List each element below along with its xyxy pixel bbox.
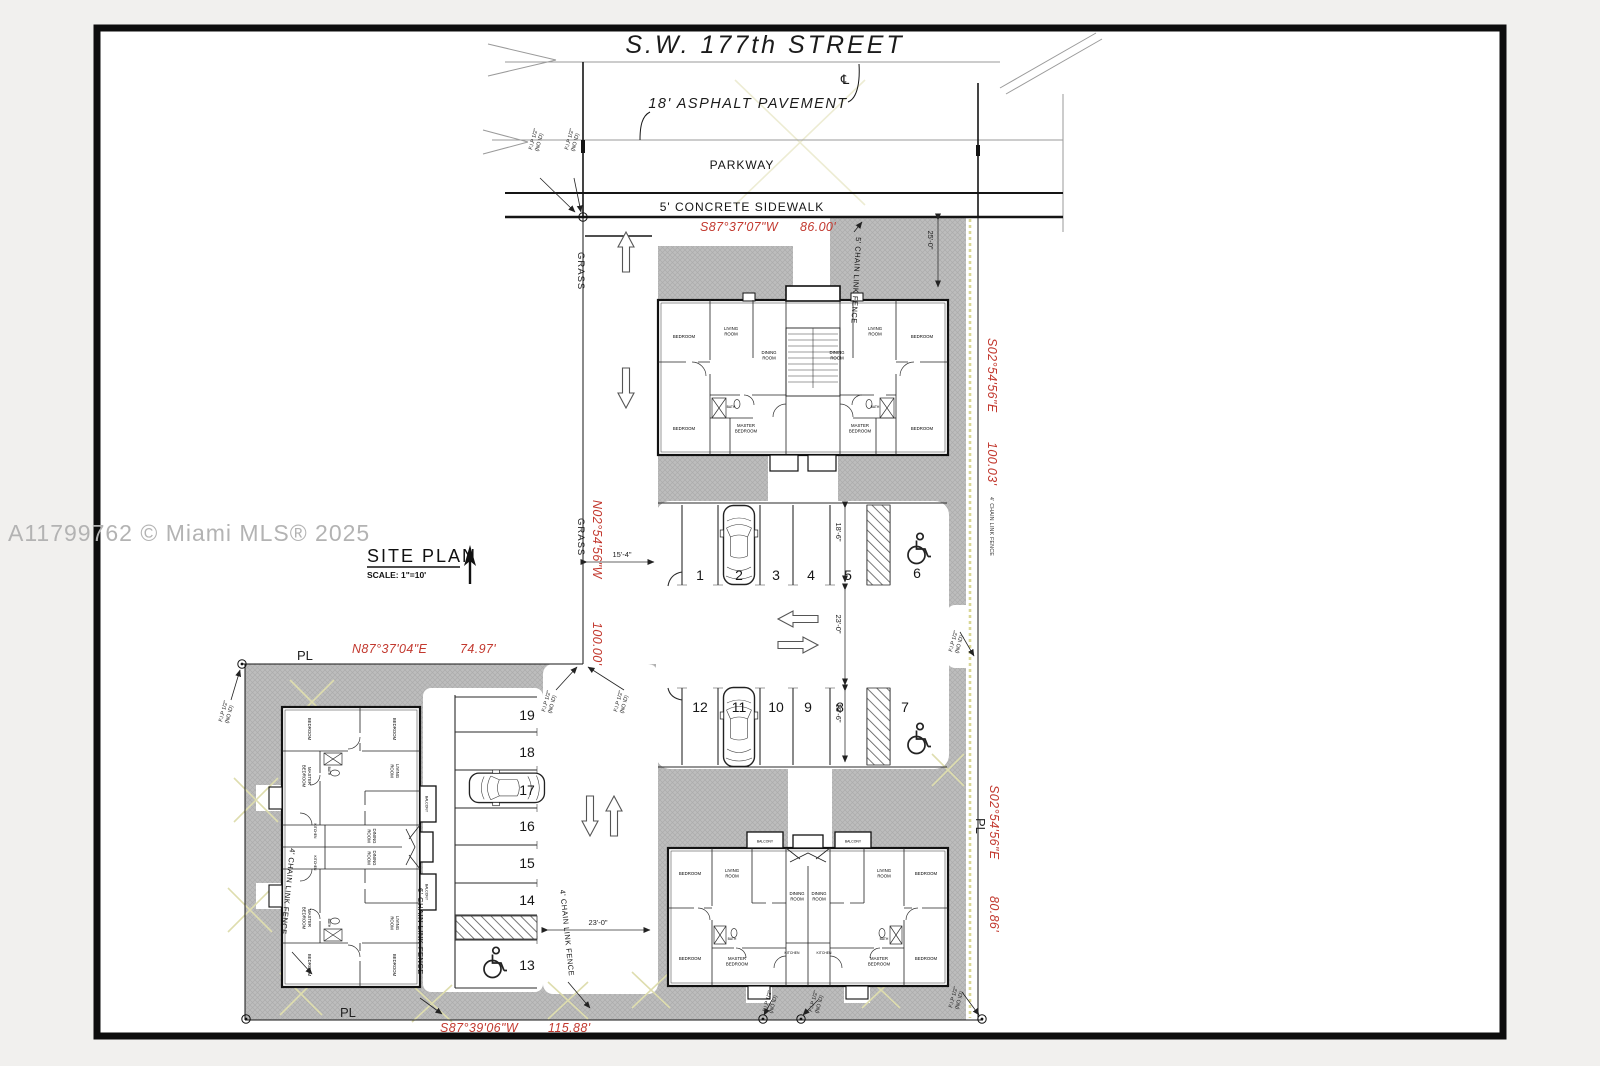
bearing-east-lower-length: 80.86' [987, 896, 1001, 932]
parking-stall-number: 6 [913, 565, 921, 581]
dim-lower-aisle: 23'-0" [588, 918, 607, 927]
bearing-west-length: 100.00' [590, 622, 604, 666]
drawing-scale: SCALE: 1"=10' [367, 570, 426, 580]
parking-stall-number: 19 [519, 707, 535, 723]
dim-setback: 25'-0" [926, 230, 935, 249]
pl-label: PL [973, 818, 988, 834]
bearing-east-upper-length: 100.03' [985, 442, 999, 486]
room-label: BATH [871, 405, 880, 409]
room-label: BEDROOM [673, 334, 696, 339]
fence-label-6ft: 6' CHAIN LINK FENCE [416, 888, 425, 975]
parking-stall-number: 15 [519, 855, 535, 871]
room-label: BEDROOM [673, 426, 696, 431]
parking-stall-number: 17 [519, 782, 535, 798]
parking-stall-number: 13 [519, 957, 535, 973]
parking-stall-number: 1 [696, 567, 704, 583]
room-label: BEDROOM [911, 426, 934, 431]
parkway-label: PARKWAY [710, 158, 775, 172]
fence-label-4ft: 4' CHAIN LINK FENCE [988, 497, 994, 556]
no-parking-hatch [867, 505, 890, 585]
no-parking-hatch [456, 916, 537, 939]
parking-stall-number: 4 [807, 567, 815, 583]
bearing-north: S87°37'07"W [700, 220, 779, 234]
asphalt-label: 18' ASPHALT PAVEMENT [648, 96, 847, 112]
bearing-lower-north: N87°37'04"E [352, 642, 428, 656]
pl-label: PL [297, 648, 313, 663]
bearing-lower-north-length: 74.97' [460, 642, 496, 656]
no-parking-hatch [867, 688, 890, 765]
bearing-north-length: 86.00' [800, 220, 836, 234]
centerline-symbol: ℄ [840, 72, 850, 87]
street-name: S.W. 177th STREET [625, 31, 904, 59]
dim-aisle-width: 23'-0" [834, 614, 843, 633]
room-label: BEDROOM [735, 429, 758, 434]
parking-stall-number: 18 [519, 744, 535, 760]
parking-stall-number: 10 [768, 699, 784, 715]
parking-stall-number: 11 [732, 699, 747, 715]
parking-stall-number: 14 [519, 892, 535, 908]
watermark: A11799762 © Miami MLS® 2025 [8, 520, 370, 546]
bearing-west: N02°54'56"W [590, 500, 604, 580]
bearing-east-upper: S02°54'56"E [985, 338, 999, 413]
dim-drive-width: 15'-4" [612, 550, 631, 559]
bearing-east-lower: S02°54'56"E [987, 785, 1001, 860]
room-label: ROOM [830, 356, 844, 361]
dim-stall-depth: 18'-6" [834, 522, 843, 541]
site-plan-page: BALCONY BALCONY BEDROOM LIVING ROOM DINI… [0, 0, 1600, 1066]
upper-building: BEDROOM LIVING ROOM DINING ROOM DINING R… [658, 286, 948, 471]
room-label: MASTER [851, 423, 869, 428]
site-plan-drawing: BALCONY BALCONY BEDROOM LIVING ROOM DINI… [0, 0, 1600, 1066]
room-label: LIVING [724, 326, 739, 331]
west-building [269, 707, 436, 987]
room-label: DINING [829, 350, 845, 355]
parking-stall-number: 16 [519, 818, 535, 834]
room-label: BEDROOM [849, 429, 872, 434]
parking-stall-number: 9 [804, 699, 812, 715]
pl-label: PL [340, 1005, 356, 1020]
lower-building [668, 832, 948, 999]
room-label: DINING [761, 350, 777, 355]
room-label: ROOM [724, 332, 738, 337]
room-label: BEDROOM [911, 334, 934, 339]
room-label: LIVING [868, 326, 883, 331]
room-label: BATH [727, 405, 736, 409]
grass-label: GRASS [575, 252, 586, 290]
dim-stall-depth: 18'-6" [834, 703, 843, 722]
sidewalk-label: 5' CONCRETE SIDEWALK [660, 200, 825, 214]
grass-label: GRASS [575, 518, 586, 556]
room-label: ROOM [762, 356, 776, 361]
parking-stall-number: 7 [901, 699, 909, 715]
room-label: MASTER [737, 423, 755, 428]
parking-stall-number: 2 [735, 567, 743, 583]
drawing-title: SITE PLAN [367, 546, 477, 566]
parking-stall-number: 12 [692, 699, 708, 715]
parking-stall-number: 3 [772, 567, 780, 583]
room-label: ROOM [868, 332, 882, 337]
